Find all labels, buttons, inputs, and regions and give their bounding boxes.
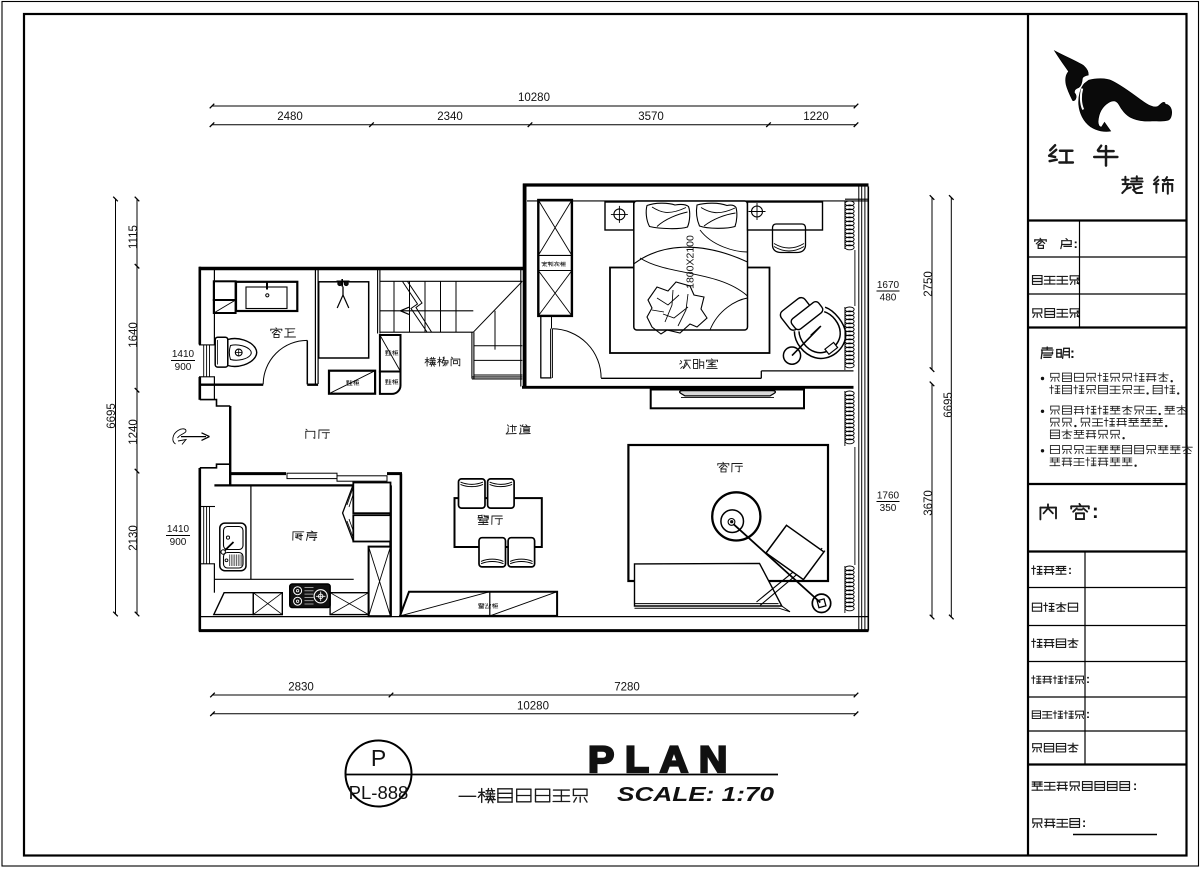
svg-text:7280: 7280: [614, 682, 640, 694]
svg-text:SCALE: 1:70: SCALE: 1:70: [617, 783, 775, 806]
svg-text:900: 900: [170, 537, 187, 548]
svg-text::: :: [1133, 779, 1137, 793]
svg-text:2130: 2130: [128, 525, 140, 551]
svg-text::: :: [1086, 672, 1090, 686]
svg-text:10280: 10280: [518, 92, 550, 104]
svg-text:2750: 2750: [923, 271, 935, 297]
svg-text:480: 480: [880, 293, 897, 304]
svg-text:900: 900: [175, 362, 192, 373]
svg-text:3570: 3570: [638, 111, 664, 123]
svg-text::: :: [1070, 346, 1075, 362]
svg-text::: :: [1086, 707, 1090, 721]
svg-text:PL-888: PL-888: [349, 782, 409, 803]
svg-text:1760: 1760: [877, 491, 900, 502]
svg-text::: :: [1082, 816, 1086, 830]
svg-text:2830: 2830: [288, 682, 314, 694]
svg-text:10280: 10280: [517, 701, 549, 713]
svg-text:PLAN: PLAN: [588, 739, 738, 780]
svg-text:1670: 1670: [877, 280, 900, 291]
svg-text::: :: [1074, 236, 1078, 251]
svg-text:2480: 2480: [277, 111, 303, 123]
svg-text:1115: 1115: [128, 225, 140, 249]
svg-text:6695: 6695: [106, 403, 118, 429]
svg-text:1220: 1220: [803, 111, 829, 123]
svg-text:1640: 1640: [128, 322, 140, 348]
svg-text:P: P: [371, 745, 386, 771]
svg-text:1800X2100: 1800X2100: [685, 235, 697, 289]
svg-text:1410: 1410: [172, 349, 195, 360]
svg-text:3670: 3670: [923, 490, 935, 516]
svg-text::: :: [1092, 501, 1099, 523]
svg-text:2340: 2340: [437, 111, 463, 123]
svg-text:350: 350: [880, 503, 897, 514]
svg-text::: :: [1068, 563, 1072, 577]
svg-text:1410: 1410: [167, 524, 190, 535]
svg-text:1240: 1240: [128, 419, 140, 445]
svg-text:6695: 6695: [943, 392, 955, 418]
